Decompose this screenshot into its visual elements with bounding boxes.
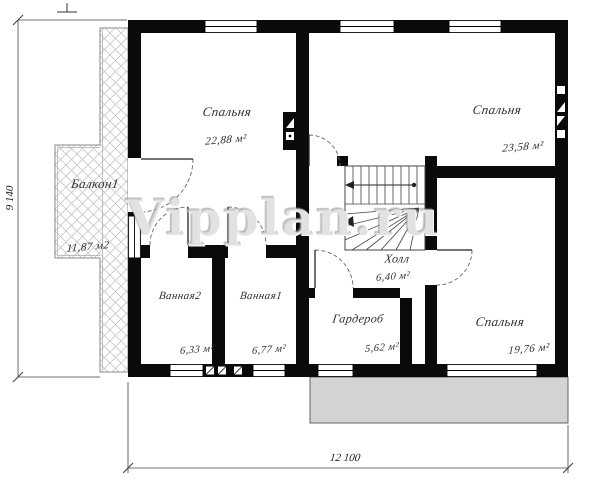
- window-icons-top: [205, 20, 501, 33]
- room-label-bedroom-top-right: Спальня: [472, 102, 523, 118]
- dimension-label-width: 12 100: [329, 452, 361, 464]
- room-label-balcony: Балкон1: [70, 176, 120, 192]
- vent-icons-right-wall: [557, 86, 565, 138]
- room-label-bathroom-2: Ванная2: [158, 290, 202, 302]
- room-label-bedroom-bottom-right: Спальня: [475, 314, 526, 330]
- balcony-openings: [128, 158, 141, 258]
- room-label-bedroom-top-left: Спальня: [202, 104, 253, 120]
- floor-plan-canvas: Vipplan.ru Спальня 22,88 м² Спальня 23,5…: [0, 0, 600, 502]
- staircase: [344, 166, 425, 250]
- balcony-deck: [55, 28, 128, 372]
- terrace-roof: [310, 377, 568, 423]
- room-label-hall: Холл: [384, 252, 411, 267]
- room-label-wardrobe: Гардероб: [331, 312, 384, 327]
- vent-icons-bottom: [206, 367, 242, 375]
- dimension-label-height: 9 140: [4, 186, 16, 211]
- room-label-bathroom-1: Ванная1: [239, 290, 283, 302]
